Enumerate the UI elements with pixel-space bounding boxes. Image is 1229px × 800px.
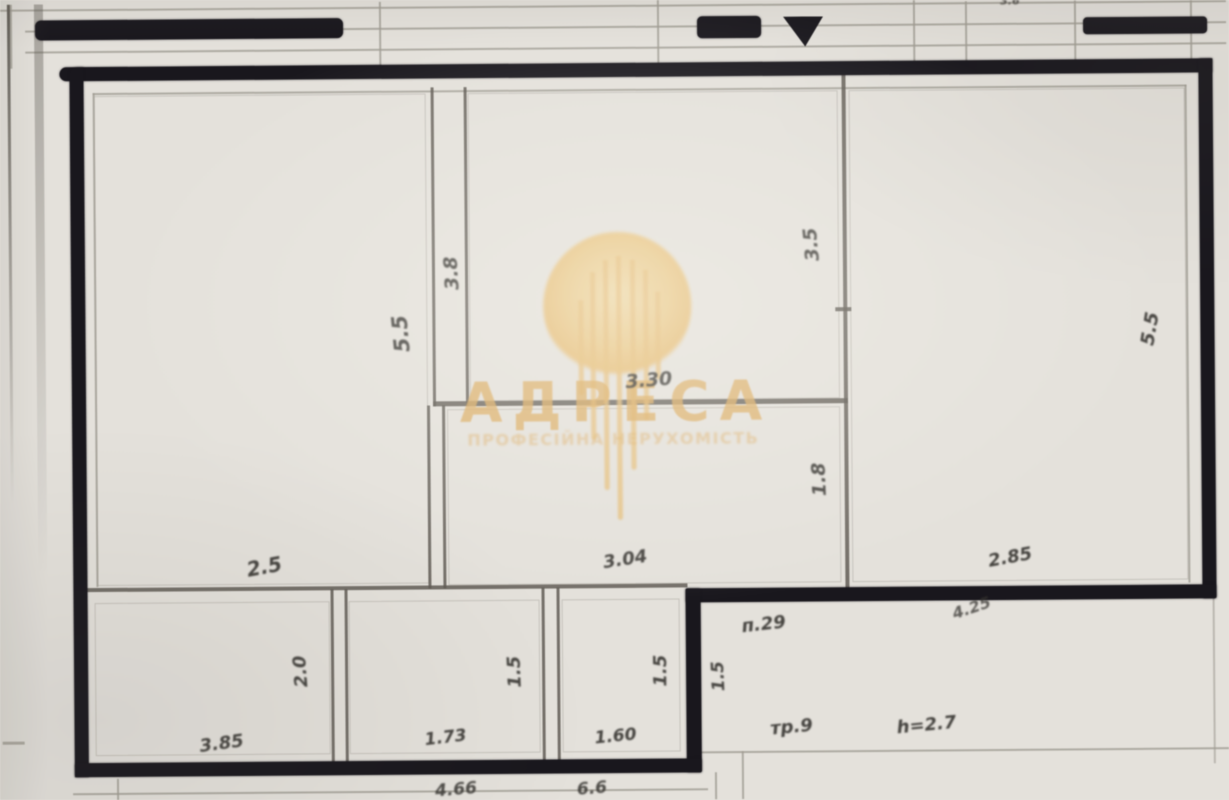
dimension-label: 2.0: [291, 655, 311, 688]
dimension-label: 3.8: [442, 256, 463, 291]
dimension-label: 2.85: [987, 545, 1034, 571]
dimension-label: 3.5: [801, 227, 823, 262]
dimension-label: 1.73: [424, 728, 468, 750]
dimension-label: п.29: [741, 613, 787, 636]
dimension-labels-layer: 5.53.83.303.51.85.52.53.042.854.25п.291.…: [0, 0, 1229, 800]
dimension-label: 1.8: [809, 462, 829, 496]
dimension-label: h=2.7: [896, 714, 957, 738]
dimension-label: 1.5: [505, 655, 524, 688]
floor-plan-photo: АДРЕСА ПРОФЕСІЙНА НЕРУХОМІСТЬ 5.53.83.30…: [0, 0, 1229, 800]
dimension-label: 6.6: [576, 780, 607, 799]
dimension-label: 1.5: [652, 655, 670, 687]
dimension-label: 4.66: [434, 780, 477, 800]
dimension-label: 4.25: [950, 594, 993, 622]
dimension-label: 3.85: [198, 732, 244, 756]
plan-content: АДРЕСА ПРОФЕСІЙНА НЕРУХОМІСТЬ 5.53.83.30…: [0, 0, 1229, 800]
dimension-label: 3.04: [602, 548, 649, 572]
dimension-label: 3.30: [625, 369, 673, 392]
dimension-label: 1.5: [710, 661, 728, 692]
dimension-label: 1.60: [594, 727, 637, 748]
dimension-label: 3.6: [1000, 0, 1020, 6]
dimension-label: 5.5: [389, 314, 413, 353]
dimension-label: 5.5: [1138, 311, 1162, 347]
dimension-label: тр.9: [769, 717, 813, 739]
dimension-label: 2.5: [245, 554, 283, 580]
